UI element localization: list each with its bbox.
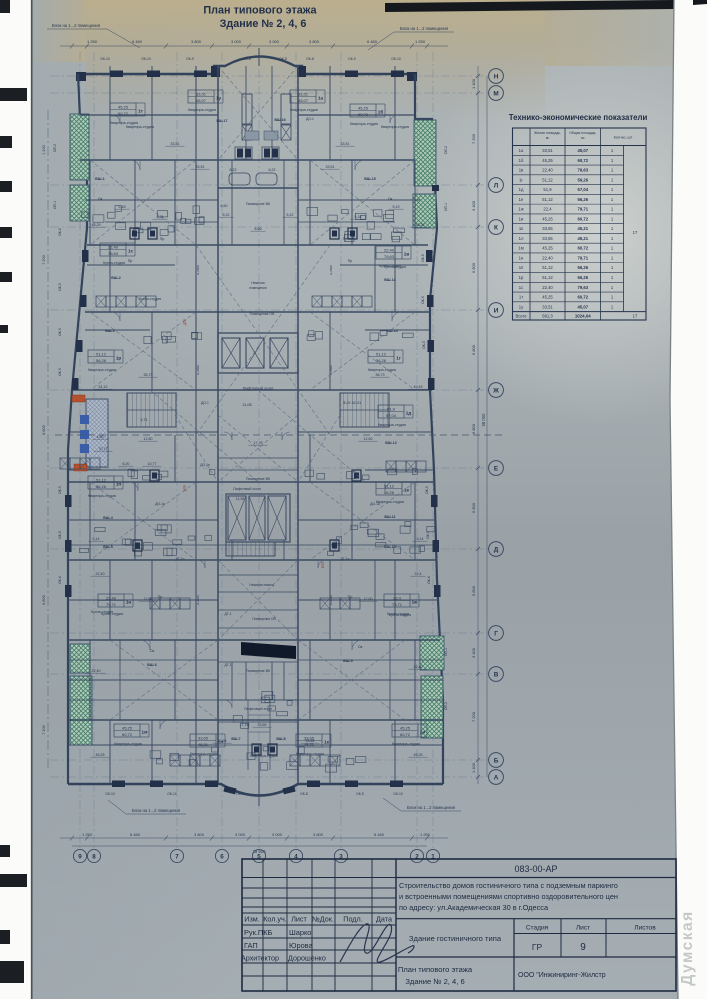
svg-text:3 000: 3 000 [235, 832, 246, 837]
svg-text:22,40: 22,40 [414, 665, 423, 669]
svg-text:ОК-6: ОК-6 [421, 254, 425, 262]
svg-text:60,72: 60,72 [122, 732, 133, 737]
svg-text:Квартира-студия: Квартира-студия [88, 494, 116, 498]
svg-text:45,25: 45,25 [122, 725, 133, 730]
svg-text:79,71: 79,71 [578, 255, 589, 260]
svg-text:1д: 1д [519, 187, 524, 192]
svg-text:ОК-5: ОК-5 [58, 531, 62, 539]
svg-text:58 000: 58 000 [481, 413, 486, 426]
svg-text:22,40: 22,40 [384, 247, 395, 252]
svg-text:ДГ-1п: ДГ-1п [341, 557, 350, 561]
svg-text:План типового этажа: План типового этажа [398, 965, 473, 974]
svg-text:Лифтовый холл: Лифтовый холл [233, 487, 261, 491]
svg-text:6 800: 6 800 [42, 425, 46, 435]
svg-text:6,60: 6,60 [221, 204, 228, 208]
svg-text:661,3: 661,3 [542, 314, 553, 319]
svg-text:11,08: 11,08 [242, 403, 251, 407]
svg-text:3 800: 3 800 [194, 832, 205, 837]
svg-text:3 800: 3 800 [191, 39, 202, 44]
svg-text:51,12: 51,12 [96, 351, 107, 356]
svg-text:79,71: 79,71 [578, 207, 589, 212]
svg-text:Б: Б [494, 757, 499, 764]
svg-text:М: М [493, 90, 498, 97]
svg-text:ВШ-12: ВШ-12 [385, 441, 396, 445]
svg-text:56,26: 56,26 [376, 358, 387, 363]
svg-text:ОК-10: ОК-10 [141, 57, 151, 61]
svg-text:51,12: 51,12 [384, 483, 395, 488]
svg-text:ОК-6: ОК-6 [427, 576, 431, 584]
svg-text:Квартира-студия: Квартира-студия [381, 125, 409, 129]
svg-text:51,12: 51,12 [376, 351, 387, 356]
svg-text:Блок на 1...2 помещения: Блок на 1...2 помещения [132, 808, 180, 813]
svg-text:6 460: 6 460 [374, 832, 385, 837]
svg-text:Кухня-студия: Кухня-студия [384, 265, 406, 269]
svg-text:33,51: 33,51 [298, 91, 309, 96]
svg-text:ОК-6: ОК-6 [58, 228, 62, 236]
svg-text:33,51: 33,51 [171, 142, 180, 146]
svg-text:ОК-10: ОК-10 [105, 792, 115, 796]
svg-text:ОК-10: ОК-10 [100, 57, 110, 61]
svg-text:Помещение ОВ: Помещение ОВ [250, 312, 275, 316]
svg-text:Ф-ЗУ АС-01: Ф-ЗУ АС-01 [343, 401, 361, 405]
svg-text:ОК-8: ОК-8 [300, 792, 308, 796]
svg-text:60,72: 60,72 [578, 216, 589, 221]
svg-text:1л: 1л [519, 236, 524, 241]
svg-text:Нежилая: Нежилая [251, 281, 265, 285]
svg-text:22,40: 22,40 [92, 669, 101, 673]
svg-text:Н-2500: Н-2500 [329, 265, 333, 275]
svg-text:9: 9 [78, 853, 82, 860]
svg-text:Н-2500: Н-2500 [329, 365, 333, 375]
svg-text:Нежилая помещ.: Нежилая помещ. [249, 583, 274, 587]
svg-text:1 250: 1 250 [82, 832, 93, 837]
svg-text:Архитектор: Архитектор [241, 954, 279, 963]
svg-text:33,51: 33,51 [341, 142, 350, 146]
svg-text:6: 6 [220, 853, 224, 860]
svg-text:Помещение ВК: Помещение ВК [246, 669, 270, 673]
svg-text:51,12: 51,12 [96, 477, 107, 482]
svg-text:45,21: 45,21 [578, 226, 589, 231]
svg-text:22,4: 22,4 [393, 595, 402, 600]
svg-text:ОП-2: ОП-2 [444, 146, 448, 154]
svg-text:А: А [494, 774, 499, 781]
svg-text:1и: 1и [519, 216, 524, 221]
svg-text:79,71: 79,71 [106, 602, 117, 607]
svg-text:ОП-1: ОП-1 [444, 648, 448, 656]
svg-text:6 800: 6 800 [471, 262, 476, 273]
svg-text:Н-2500: Н-2500 [329, 595, 333, 605]
svg-text:6 460: 6 460 [367, 39, 378, 44]
svg-text:3,71: 3,71 [140, 418, 147, 422]
svg-text:6 800: 6 800 [42, 595, 46, 605]
svg-text:Жилая площадь,: Жилая площадь, [534, 131, 561, 135]
svg-text:22,40: 22,40 [542, 168, 553, 173]
svg-text:1к: 1к [324, 740, 330, 745]
svg-text:Квартира-студия: Квартира-студия [126, 125, 154, 129]
svg-text:Г: Г [494, 630, 498, 637]
svg-text:ОК-10: ОК-10 [391, 57, 401, 61]
svg-text:И: И [494, 307, 499, 314]
svg-text:1с: 1с [519, 285, 523, 290]
svg-text:60,72: 60,72 [578, 158, 589, 163]
svg-text:79,63: 79,63 [108, 251, 119, 256]
svg-text:Ок: Ок [388, 197, 393, 201]
svg-text:45,07: 45,07 [196, 98, 207, 103]
svg-text:36,73: 36,73 [376, 373, 385, 377]
svg-text:22,40: 22,40 [542, 255, 553, 260]
svg-text:1а: 1а [318, 96, 324, 101]
svg-text:ОК-5: ОК-5 [422, 341, 426, 349]
svg-text:Квартира-студия: Квартира-студия [114, 742, 142, 746]
svg-text:ОК-10: ОК-10 [167, 792, 177, 796]
svg-text:1н: 1н [519, 255, 524, 260]
svg-text:Общая площадь,: Общая площадь, [569, 131, 596, 135]
svg-text:Пр: Пр [160, 237, 165, 241]
svg-text:ОК-9: ОК-9 [356, 792, 364, 796]
svg-text:ОП-1: ОП-1 [444, 203, 448, 211]
svg-text:Юрова: Юрова [289, 941, 314, 950]
svg-text:45,25: 45,25 [358, 105, 369, 110]
svg-text:1к: 1к [519, 226, 523, 231]
svg-text:Д: Д [494, 546, 499, 553]
svg-text:Квартира-студия: Квартира-студия [350, 122, 378, 126]
svg-text:ООО "Инжиниринг-Жилстр: ООО "Инжиниринг-Жилстр [518, 972, 606, 979]
svg-text:51,12: 51,12 [542, 275, 553, 280]
svg-text:6 800: 6 800 [471, 585, 476, 596]
svg-text:083-00-АР: 083-00-АР [514, 864, 557, 874]
svg-text:Е: Е [494, 465, 499, 472]
svg-text:10,77: 10,77 [148, 462, 157, 466]
svg-text:Думская: Думская [679, 910, 696, 985]
svg-text:70,77: 70,77 [99, 447, 108, 451]
svg-text:1 200: 1 200 [42, 145, 46, 155]
svg-text:33,65: 33,65 [218, 739, 227, 743]
svg-text:Здание № 2, 4, 6: Здание № 2, 4, 6 [405, 977, 464, 986]
svg-text:45,21: 45,21 [578, 236, 589, 241]
svg-text:33,51: 33,51 [542, 148, 553, 153]
svg-text:ГР: ГР [532, 942, 543, 952]
svg-text:1ж: 1ж [412, 600, 419, 605]
svg-text:по адресу: ул.Академическая 3: по адресу: ул.Академическая 30 в г.Одесс… [399, 903, 549, 912]
svg-text:ОК-9: ОК-9 [236, 792, 244, 796]
svg-text:Дорошенко: Дорошенко [288, 954, 326, 963]
svg-text:Квартира-студия: Квартира-студия [368, 368, 396, 372]
svg-text:Шарко: Шарко [289, 928, 311, 937]
svg-text:ВШ-6: ВШ-6 [147, 663, 156, 667]
svg-text:12,60: 12,60 [364, 597, 373, 601]
svg-text:45,25: 45,25 [542, 158, 553, 163]
svg-text:Квартира-студия: Квартира-студия [376, 500, 404, 504]
svg-text:79,63: 79,63 [578, 168, 589, 173]
svg-text:Квартира-студия: Квартира-студия [392, 742, 420, 746]
svg-text:ОК-6: ОК-6 [58, 576, 62, 584]
svg-text:3 000: 3 000 [269, 39, 280, 44]
svg-text:ВШ-9: ВШ-9 [343, 659, 352, 663]
svg-text:1д: 1д [406, 411, 412, 416]
svg-text:3 400: 3 400 [471, 200, 476, 211]
svg-text:ОК-8: ОК-8 [306, 57, 314, 61]
svg-text:ОК-5: ОК-5 [58, 283, 62, 291]
svg-text:49,49: 49,49 [414, 385, 423, 389]
svg-text:Лист: Лист [291, 915, 307, 924]
svg-text:Квартира-студия: Квартира-студия [378, 423, 406, 427]
svg-text:Здание гостиничного типа: Здание гостиничного типа [409, 934, 502, 943]
svg-text:Квартира-студия: Квартира-студия [290, 108, 318, 112]
svg-text:7 200: 7 200 [471, 711, 476, 722]
svg-text:57,04: 57,04 [578, 187, 589, 192]
svg-text:План типового этажа: План типового этажа [203, 5, 317, 17]
svg-text:33,51: 33,51 [542, 304, 553, 309]
svg-text:Кухня-студия: Кухня-студия [91, 610, 113, 614]
svg-text:ВШ-3: ВШ-3 [105, 329, 114, 333]
svg-text:помещения: помещения [249, 286, 266, 290]
svg-text:1в: 1в [519, 168, 524, 173]
svg-text:60,72: 60,72 [578, 246, 589, 251]
svg-text:22,40: 22,40 [96, 572, 105, 576]
svg-text:60,72: 60,72 [118, 111, 129, 116]
svg-text:56,26: 56,26 [578, 275, 589, 280]
svg-text:7 200: 7 200 [471, 133, 476, 144]
svg-text:ДГ-1: ДГ-1 [225, 612, 232, 616]
svg-text:1 250: 1 250 [415, 39, 426, 44]
svg-text:60,72: 60,72 [358, 112, 369, 117]
svg-text:ОК-9: ОК-9 [348, 57, 356, 61]
svg-text:ОК-5: ОК-5 [425, 486, 429, 494]
svg-text:Строительство домов гостиничн: Строительство домов гостиничного типа с … [399, 881, 618, 890]
svg-text:22,40: 22,40 [106, 595, 117, 600]
svg-text:6 460: 6 460 [132, 39, 143, 44]
svg-text:79,63: 79,63 [578, 285, 589, 290]
svg-text:56,26: 56,26 [384, 490, 395, 495]
svg-text:ВШ-7: ВШ-7 [231, 737, 240, 741]
svg-text:Кол-во, шт: Кол-во, шт [614, 136, 633, 140]
svg-text:6 460: 6 460 [130, 832, 141, 837]
svg-text:22,4: 22,4 [543, 207, 552, 212]
svg-text:51,9: 51,9 [543, 187, 552, 192]
svg-text:5,19: 5,19 [393, 205, 400, 209]
svg-text:ВШ-1: ВШ-1 [95, 177, 104, 181]
svg-text:12,80: 12,80 [144, 437, 153, 441]
svg-text:ОК-5: ОК-5 [426, 531, 430, 539]
svg-text:Ок: Ок [98, 197, 103, 201]
svg-text:1г: 1г [396, 356, 401, 361]
svg-text:45,25: 45,25 [542, 295, 553, 300]
svg-text:45,25: 45,25 [416, 223, 425, 227]
svg-text:К: К [494, 224, 498, 231]
svg-text:56,26: 56,26 [96, 358, 107, 363]
svg-text:1б: 1б [378, 109, 384, 115]
svg-text:45,25: 45,25 [414, 753, 423, 757]
svg-text:79,63: 79,63 [384, 254, 395, 259]
svg-text:Квартира-студия: Квартира-студия [190, 752, 218, 756]
svg-text:ОК-5: ОК-5 [58, 328, 62, 336]
svg-text:Квартира-студия: Квартира-студия [88, 368, 116, 372]
svg-text:6 800: 6 800 [471, 423, 476, 434]
svg-text:Ж: Ж [492, 387, 499, 394]
svg-text:ОК-9: ОК-9 [186, 57, 194, 61]
svg-text:№Док.: №Док. [312, 915, 334, 924]
svg-text:1п: 1п [519, 265, 524, 270]
svg-text:33,65: 33,65 [306, 739, 315, 743]
svg-text:Н: Н [494, 73, 499, 80]
svg-text:4,66: 4,66 [97, 435, 104, 439]
svg-text:Пр: Пр [348, 259, 353, 263]
svg-text:1т: 1т [138, 109, 144, 114]
svg-text:60,72: 60,72 [578, 295, 589, 300]
svg-text:33,65: 33,65 [258, 723, 267, 727]
svg-text:6,20: 6,20 [123, 462, 130, 466]
svg-text:1б: 1б [519, 158, 524, 163]
svg-text:6,22: 6,22 [230, 168, 237, 172]
svg-text:7 200: 7 200 [42, 725, 46, 735]
svg-text:Ок: Ок [150, 649, 155, 653]
svg-text:ВШ-15: ВШ-15 [364, 177, 375, 181]
svg-text:56,26: 56,26 [578, 265, 589, 270]
svg-text:Кол.уч.: Кол.уч. [263, 915, 287, 924]
svg-text:Н-2500: Н-2500 [196, 365, 200, 375]
svg-text:ОК-5: ОК-5 [58, 368, 62, 376]
svg-text:1ж: 1ж [518, 207, 523, 212]
svg-text:Помещение ВК: Помещение ВК [246, 477, 270, 481]
svg-text:Н-2500: Н-2500 [196, 265, 200, 275]
svg-text:ВШ-4: ВШ-4 [103, 516, 112, 520]
svg-text:6 800: 6 800 [471, 502, 476, 513]
svg-text:3 800: 3 800 [313, 832, 324, 837]
svg-text:Рук.ПКБ: Рук.ПКБ [244, 928, 273, 937]
svg-text:1м: 1м [142, 730, 149, 735]
svg-text:51,12: 51,12 [542, 265, 553, 270]
svg-text:3 400: 3 400 [471, 647, 476, 658]
svg-text:3 000: 3 000 [272, 832, 283, 837]
svg-text:57,04: 57,04 [386, 413, 397, 418]
svg-text:1м: 1м [518, 246, 523, 251]
svg-text:Лифтовый холл: Лифтовый холл [244, 707, 272, 711]
svg-text:22,40: 22,40 [542, 285, 553, 290]
svg-text:17: 17 [633, 314, 638, 319]
svg-text:ДГ-1: ДГ-1 [225, 663, 232, 667]
svg-text:Н-2500: Н-2500 [196, 595, 200, 605]
svg-text:Квартира-студия: Квартира-студия [188, 108, 216, 112]
svg-text:6,22: 6,22 [287, 213, 294, 217]
svg-text:Блок на 1...2 помещения: Блок на 1...2 помещения [407, 805, 455, 810]
svg-text:56,26: 56,26 [96, 484, 107, 489]
svg-text:Кухня-студия: Кухня-студия [103, 261, 125, 265]
svg-text:Блок на 1...2 помещения: Блок на 1...2 помещения [400, 26, 448, 31]
svg-text:45,21: 45,21 [198, 742, 209, 747]
svg-text:ДПБ: ДПБ [183, 319, 187, 326]
svg-text:17,76: 17,76 [254, 441, 263, 445]
svg-text:Технико-экономические показате: Технико-экономические показатели [509, 113, 648, 122]
svg-text:ОП-2: ОП-2 [444, 702, 448, 710]
svg-text:ДО-1: ДО-1 [201, 401, 209, 405]
svg-text:8: 8 [92, 853, 96, 860]
svg-text:Пр: Пр [128, 259, 133, 263]
svg-text:5,14: 5,14 [417, 537, 424, 541]
svg-text:3 000: 3 000 [231, 39, 242, 44]
svg-text:ДО-1: ДО-1 [306, 117, 314, 121]
svg-text:ВШ-14: ВШ-14 [384, 278, 395, 282]
svg-text:1р: 1р [519, 275, 524, 280]
svg-text:6,22: 6,22 [269, 168, 276, 172]
svg-text:Подл.: Подл. [343, 915, 362, 924]
svg-text:ВШ-8: ВШ-8 [276, 737, 285, 741]
svg-text:1у: 1у [216, 96, 222, 101]
svg-text:45,25: 45,25 [118, 104, 129, 109]
svg-text:45,07: 45,07 [578, 148, 589, 153]
svg-text:и встроенными помещениями спор: и встроенными помещениями спортивно оздо… [399, 892, 618, 901]
svg-text:51,9: 51,9 [387, 406, 396, 411]
svg-text:1 250: 1 250 [420, 832, 431, 837]
svg-text:33,51: 33,51 [196, 91, 207, 96]
svg-text:45,25: 45,25 [96, 753, 105, 757]
svg-text:3 800: 3 800 [309, 39, 320, 44]
svg-text:33,65: 33,65 [542, 226, 553, 231]
svg-text:22,4: 22,4 [415, 572, 422, 576]
svg-text:Блок на 1...2 помещения: Блок на 1...2 помещения [52, 23, 100, 28]
svg-text:Помещение ВК: Помещение ВК [246, 202, 270, 206]
svg-text:1г: 1г [519, 177, 523, 182]
svg-text:ВПБ: ВПБ [321, 562, 325, 569]
svg-text:6,22: 6,22 [223, 213, 230, 217]
svg-text:Ок: Ок [358, 645, 363, 649]
svg-text:56,26: 56,26 [578, 197, 589, 202]
svg-text:56,26: 56,26 [578, 177, 589, 182]
svg-text:Всего: Всего [516, 314, 528, 319]
svg-text:1 400: 1 400 [471, 762, 476, 773]
svg-text:9: 9 [580, 942, 586, 953]
svg-text:Стадия: Стадия [526, 925, 549, 932]
svg-text:1и: 1и [420, 730, 426, 735]
svg-text:22,40: 22,40 [108, 244, 119, 249]
svg-text:1т: 1т [519, 295, 523, 300]
svg-text:33,65: 33,65 [198, 735, 209, 740]
svg-text:ГАП: ГАП [244, 941, 258, 950]
svg-text:ОК-8: ОК-8 [279, 57, 287, 61]
svg-text:Здание № 2, 4, 6: Здание № 2, 4, 6 [220, 18, 307, 30]
svg-text:51,12: 51,12 [542, 177, 553, 182]
svg-text:33,65: 33,65 [542, 236, 553, 241]
svg-text:8,66: 8,66 [255, 227, 262, 231]
svg-text:ВШ-17: ВШ-17 [216, 119, 227, 123]
svg-text:1н: 1н [126, 600, 132, 605]
svg-text:Дата: Дата [376, 915, 392, 924]
svg-text:45,25: 45,25 [542, 246, 553, 251]
svg-text:ВШ-11: ВШ-11 [384, 515, 395, 519]
svg-text:45,25: 45,25 [542, 216, 553, 221]
svg-text:60,72: 60,72 [400, 732, 411, 737]
svg-text:1а: 1а [519, 148, 524, 153]
svg-text:7 200: 7 200 [42, 255, 46, 265]
svg-text:33,51: 33,51 [326, 165, 335, 169]
svg-text:Изм.: Изм. [244, 915, 259, 924]
svg-text:1 400: 1 400 [471, 78, 476, 89]
svg-text:11,08: 11,08 [236, 497, 244, 501]
svg-text:51,12: 51,12 [99, 385, 108, 389]
svg-text:17: 17 [633, 230, 638, 235]
svg-text:ВШ-5: ВШ-5 [103, 545, 112, 549]
svg-text:В: В [494, 671, 499, 678]
svg-text:1е: 1е [519, 197, 524, 202]
svg-text:45,25: 45,25 [400, 725, 411, 730]
svg-text:5,14: 5,14 [93, 537, 100, 541]
svg-text:Лист: Лист [576, 925, 590, 932]
svg-text:ОК-8: ОК-8 [243, 57, 251, 61]
svg-text:1п: 1п [116, 482, 122, 487]
svg-text:Помещение ОВ: Помещение ОВ [252, 617, 275, 621]
svg-text:1 250: 1 250 [87, 39, 98, 44]
svg-text:ОП-1: ОП-1 [53, 201, 57, 209]
svg-text:45,07: 45,07 [298, 98, 309, 103]
